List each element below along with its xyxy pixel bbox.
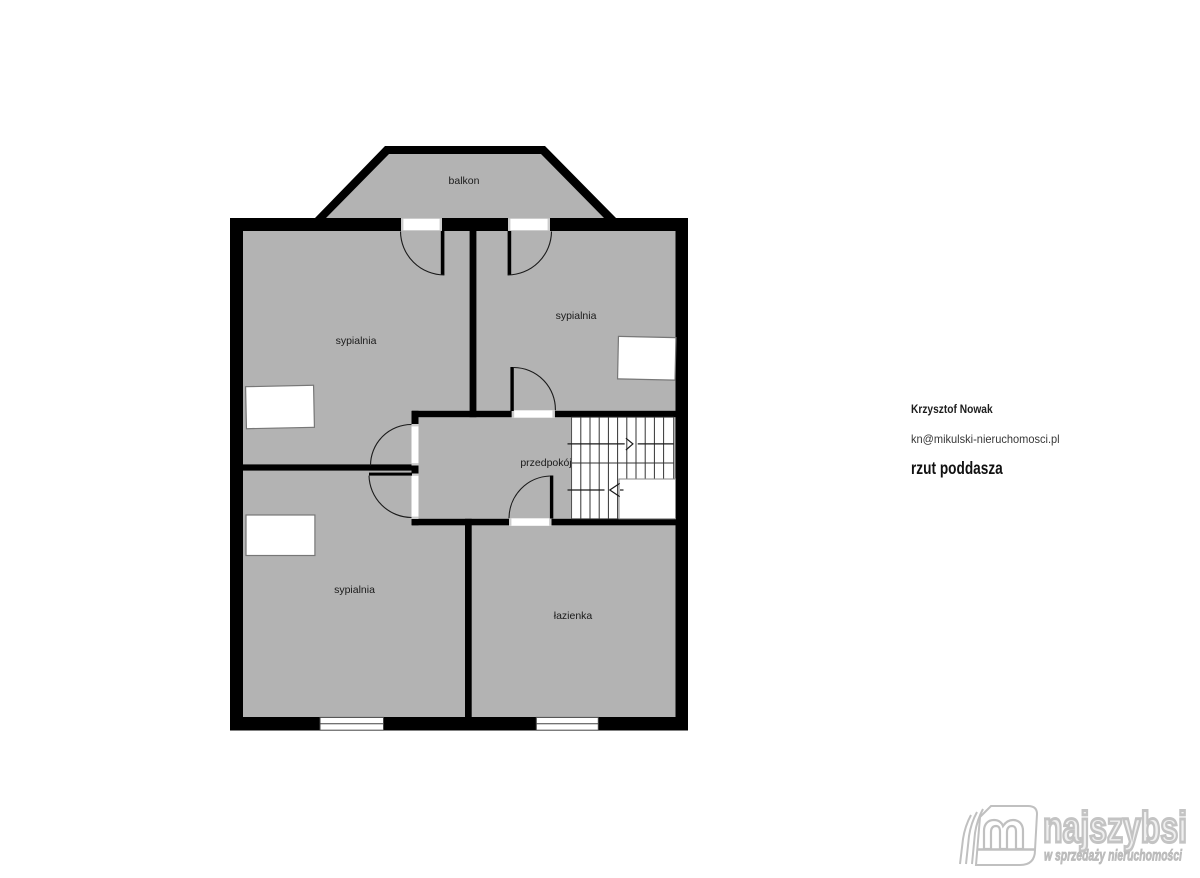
svg-text:balkon: balkon	[449, 175, 480, 187]
svg-text:w sprzedaży nieruchomości: w sprzedaży nieruchomości	[1044, 848, 1182, 865]
svg-text:najszybsi: najszybsi	[1043, 803, 1187, 852]
svg-text:przedpokój: przedpokój	[520, 457, 571, 469]
svg-text:łazienka: łazienka	[554, 610, 593, 622]
svg-text:sypialnia: sypialnia	[336, 335, 377, 347]
svg-text:sypialnia: sypialnia	[556, 310, 597, 322]
svg-text:sypialnia: sypialnia	[334, 584, 375, 596]
